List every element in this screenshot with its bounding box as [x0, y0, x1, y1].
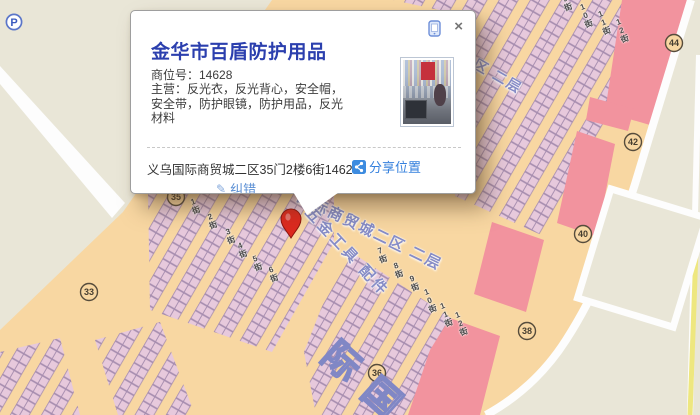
- gate-badge-38: 38: [519, 323, 536, 340]
- divider: [147, 147, 461, 148]
- gate-badge-40: 40: [575, 226, 592, 243]
- photo-monitor: [405, 100, 427, 119]
- info-popup: 金华市百盾防护用品 × 商位号：14628 主营：反光衣，反光背心，安全帽，安全…: [130, 10, 476, 194]
- share-label: 分享位置: [369, 157, 421, 176]
- svg-text:40: 40: [578, 229, 588, 239]
- svg-text:42: 42: [628, 137, 638, 147]
- gate-badge-44: 44: [666, 35, 683, 52]
- gate-badge-42: 42: [625, 134, 642, 151]
- shop-photo[interactable]: [400, 57, 454, 127]
- svg-text:33: 33: [84, 287, 94, 297]
- address-text: 义乌国际商贸城二区35门2楼6街14628: [147, 159, 360, 178]
- parking-icon: P: [6, 14, 21, 29]
- close-icon[interactable]: ×: [454, 18, 463, 35]
- share-icon: [352, 160, 366, 174]
- svg-text:P: P: [10, 17, 17, 29]
- correct-error-link[interactable]: ✎ 纠错: [216, 179, 256, 194]
- edit-icon: ✎: [216, 182, 226, 195]
- gate-badge-33: 33: [81, 284, 98, 301]
- shop-photo-image: [403, 60, 451, 124]
- business-scope: 主营：反光衣，反光背心，安全帽，安全带，防护眼镜，防护用品，反光材料: [151, 82, 351, 126]
- phone-icon[interactable]: [428, 20, 441, 37]
- svg-text:38: 38: [522, 326, 532, 336]
- correct-label: 纠错: [230, 179, 256, 194]
- booth-number: 商位号：14628: [151, 66, 232, 83]
- photo-red-sign: [421, 62, 435, 80]
- share-location-button[interactable]: 分享位置: [352, 157, 421, 176]
- svg-text:44: 44: [669, 38, 679, 48]
- map-stage: 33 35 36 38 40 42 44 P 1街 2街 3街 4街 5街 6街…: [0, 0, 700, 415]
- photo-person: [434, 84, 446, 106]
- popup-title: 金华市百盾防护用品: [151, 37, 327, 64]
